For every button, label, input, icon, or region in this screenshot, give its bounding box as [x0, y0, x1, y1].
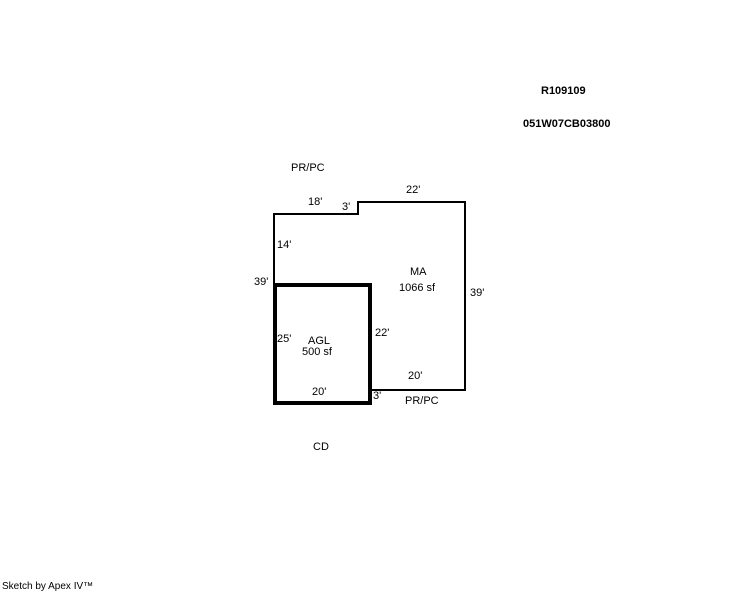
dimension-label-ma-right: 39': [470, 288, 484, 299]
dimension-label-agl-left: 25': [277, 334, 291, 345]
sketch-page: R109109 051W07CB03800 PR/PC PR/PC CD 22'…: [0, 0, 744, 595]
dimension-label-ma-left-upper: 14': [277, 240, 291, 251]
footer-credit: Sketch by Apex IV™: [2, 582, 93, 592]
dimension-label-agl-right-inner: 22': [375, 328, 389, 339]
dimension-label-agl-bottom: 20': [312, 387, 326, 398]
sketch-canvas: [0, 0, 744, 595]
annotation-cd: CD: [313, 442, 329, 453]
record-id-label: R109109: [541, 86, 586, 97]
annotation-prpc-bottom: PR/PC: [405, 396, 439, 407]
dimension-label-left-total: 39': [254, 277, 268, 288]
area-size-ma: 1066 sf: [399, 283, 435, 294]
area-code-ma: MA: [410, 267, 427, 278]
dimension-label-ma-top-right: 22': [406, 185, 420, 196]
annotation-prpc-top: PR/PC: [291, 163, 325, 174]
dimension-label-ma-top-left: 18': [308, 197, 322, 208]
area-size-agl: 500 sf: [302, 347, 332, 358]
parcel-id-label: 051W07CB03800: [523, 119, 610, 130]
dimension-label-ma-bottom: 20': [408, 371, 422, 382]
dimension-label-ma-bottom-step: 3': [373, 391, 381, 402]
dimension-label-ma-top-step: 3': [342, 202, 350, 213]
